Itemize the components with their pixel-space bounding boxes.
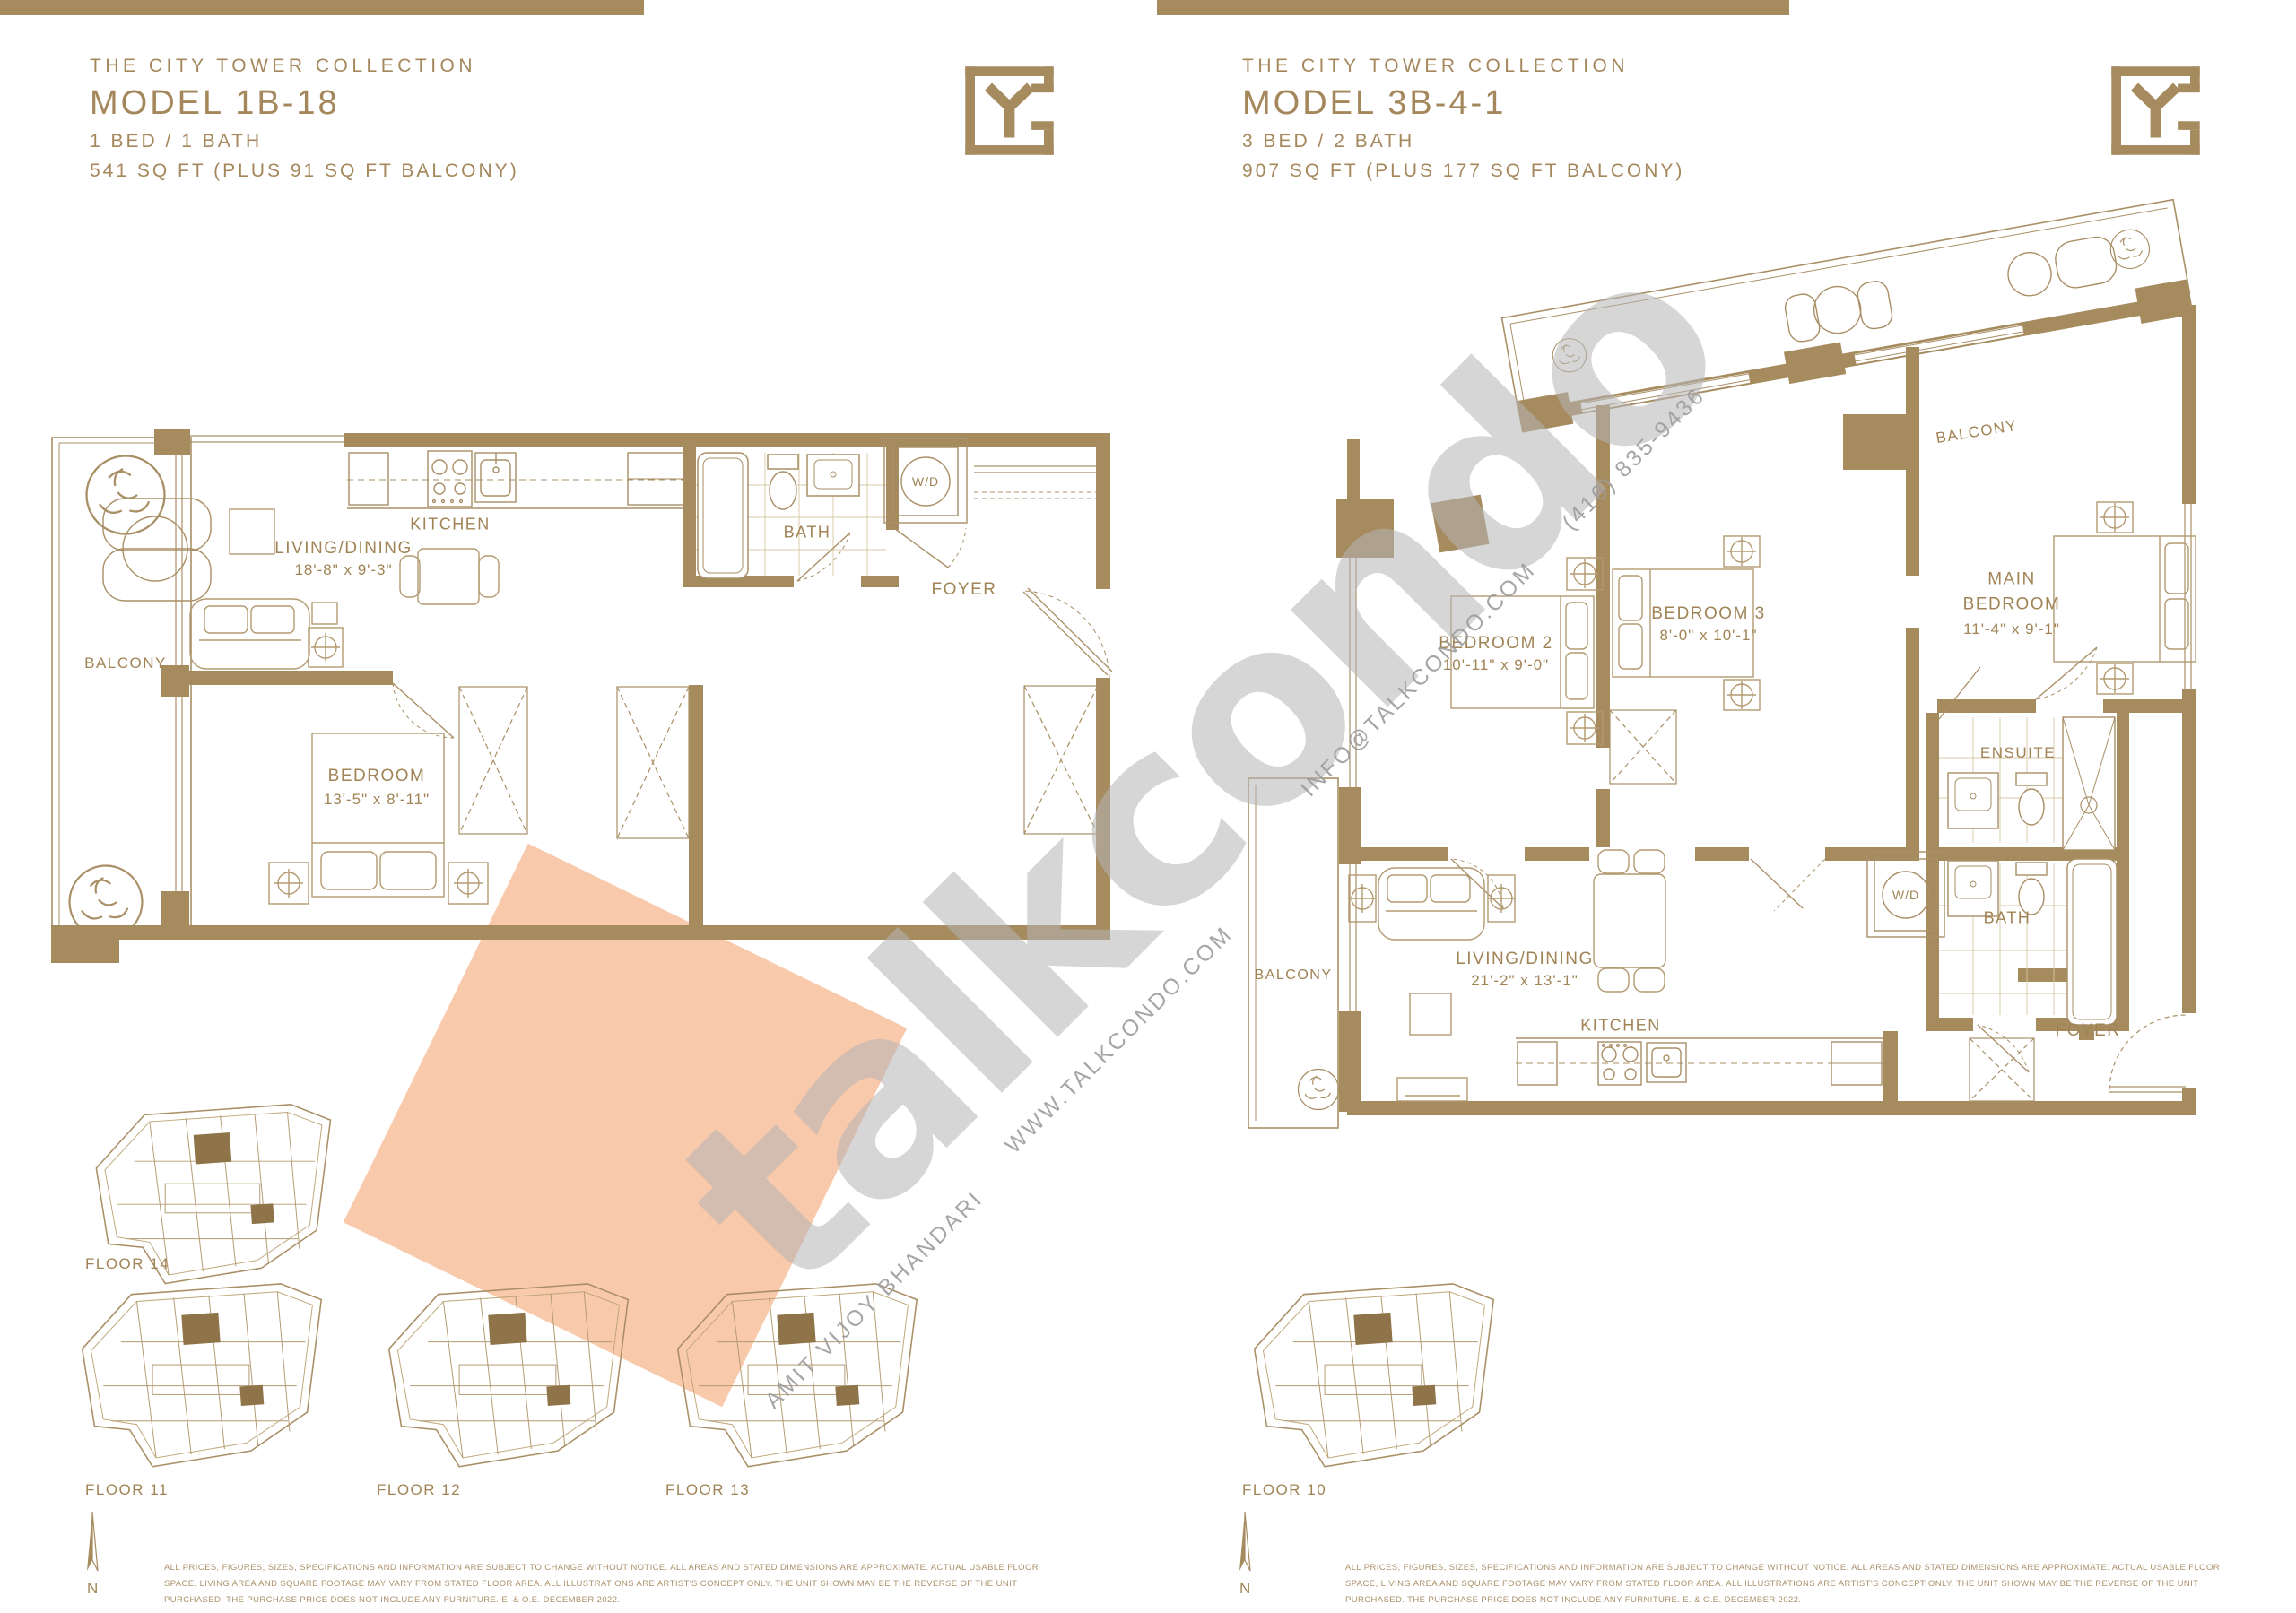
tilted-balcony	[1502, 200, 2194, 433]
key-plan-floor-10	[1255, 1284, 1494, 1467]
toilet-tank	[2016, 863, 2047, 875]
tv-console	[1397, 1078, 1467, 1101]
label-ensuite: ENSUITE	[1980, 744, 2056, 762]
balcony-lounge-chairs	[103, 499, 211, 601]
table-lamp-icon	[1487, 884, 1516, 913]
table-lamp-icon	[1570, 714, 1599, 742]
entry-door	[2109, 1087, 2186, 1092]
bed-bath-line: 1 BED / 1 BATH	[90, 131, 519, 152]
dining-set-1b18	[400, 549, 499, 604]
disclaimer-left: ALL PRICES, FIGURES, SIZES, SPECIFICATIO…	[164, 1560, 1065, 1609]
label-living-dims: 21'-2" x 13'-1"	[1471, 972, 1578, 990]
tv-console	[312, 603, 337, 624]
model-title: MODEL 1B-18	[90, 84, 519, 123]
label-foyer: FOYER	[2056, 1021, 2121, 1041]
dining-set-icon	[1594, 850, 1665, 992]
label-bedroom3: BEDROOM 3	[1651, 604, 1766, 624]
bed-bath-line: 3 BED / 2 BATH	[1242, 131, 1684, 152]
tree-icon	[87, 456, 165, 534]
bath-1b18	[696, 453, 886, 581]
kitchen-sink-icon	[475, 453, 516, 502]
label-bedroom: BEDROOM	[328, 767, 426, 786]
key-plan-floor-12	[389, 1284, 629, 1467]
table-lamp-icon	[2100, 503, 2129, 532]
label-kitchen: KITCHEN	[410, 516, 491, 534]
table-lamp-icon	[2100, 664, 2129, 693]
toilet-icon	[770, 472, 796, 509]
label-main-bedroom-dims: 11'-4" x 9'-1"	[1963, 620, 2060, 638]
area-line: 541 SQ FT (PLUS 91 SQ FT BALCONY)	[90, 160, 519, 182]
windows-1b18	[176, 436, 344, 891]
area-line: 907 SQ FT (PLUS 177 SQ FT BALCONY)	[1242, 160, 1684, 182]
label-bath: BATH	[1984, 909, 2031, 928]
label-living: LIVING/DINING	[274, 539, 413, 559]
header-right: THE CITY TOWER COLLECTION MODEL 3B-4-1 3…	[1242, 56, 1684, 182]
label-balcony-left: BALCONY	[1255, 967, 1333, 984]
table-lamp-icon	[1727, 537, 1756, 566]
foyer-1b18	[974, 466, 1112, 679]
kitchen-3b41	[1516, 1038, 1883, 1085]
label-kitchen: KITCHEN	[1580, 1017, 1661, 1036]
stove-icon	[428, 451, 472, 507]
table-lamp-icon	[311, 633, 340, 662]
collection-title: THE CITY TOWER COLLECTION	[90, 56, 519, 77]
floor-plan-3b41	[1248, 200, 2196, 1128]
balcony-left-3b41	[1248, 778, 1338, 1128]
label-wd: W/D	[912, 474, 939, 489]
label-bedroom3-dims: 8'-0" x 10'-1"	[1659, 627, 1757, 645]
key-plan-floor-11	[83, 1284, 322, 1467]
tree-icon	[2108, 227, 2152, 272]
living-furniture-1b18	[190, 509, 343, 669]
sofa-icon	[1378, 868, 1484, 940]
sofa-icon	[190, 599, 309, 669]
toilet-tank	[2016, 773, 2047, 785]
label-wd: W/D	[1892, 888, 1919, 902]
header-left: THE CITY TOWER COLLECTION MODEL 1B-18 1 …	[90, 56, 519, 182]
key-plan-floor-13	[678, 1284, 918, 1467]
label-bedroom-dims: 13'-5" x 8'-11"	[324, 791, 430, 809]
bed-1b18	[269, 733, 488, 904]
model-title: MODEL 3B-4-1	[1242, 84, 1684, 123]
rug	[1410, 993, 1451, 1035]
disclaimer-right: ALL PRICES, FIGURES, SIZES, SPECIFICATIO…	[1345, 1560, 2247, 1609]
main-bedroom-door	[2036, 647, 2097, 699]
toilet-icon	[2019, 789, 2044, 825]
label-balcony: BALCONY	[84, 655, 167, 672]
label-living-dims: 18'-8" x 9'-3"	[294, 561, 392, 579]
floor-label-11: FLOOR 11	[85, 1481, 169, 1499]
table-lamp-icon	[454, 869, 483, 898]
label-main-bedroom: MAIN BEDROOM	[1944, 567, 2079, 616]
bedroom-door-1b18	[393, 683, 454, 738]
tree-icon	[1550, 336, 1588, 375]
label-bedroom2-dims: 10'-11" x 9'-0"	[1443, 656, 1549, 674]
north-label: N	[87, 1580, 99, 1598]
floor-label-13: FLOOR 13	[665, 1481, 750, 1499]
entry-door	[1023, 588, 1112, 675]
toilet-tank	[768, 455, 798, 469]
tree-icon	[1299, 1070, 1339, 1110]
collection-title: THE CITY TOWER COLLECTION	[1242, 56, 1684, 77]
table-lamp-icon	[1570, 559, 1599, 588]
kitchen-1b18	[347, 451, 689, 508]
y-logo-icon	[961, 63, 1057, 159]
north-label: N	[1239, 1580, 1251, 1598]
hall-doors	[1451, 859, 1825, 911]
closet-bed3	[1610, 710, 1676, 784]
north-arrow-icon	[1239, 1512, 1250, 1571]
table-lamp-icon	[1348, 884, 1377, 913]
label-bedroom2: BEDROOM 2	[1439, 634, 1553, 654]
floorplan-sheet: { "left_page": { "collection": "THE CITY…	[0, 0, 2296, 1613]
table-lamp-icon	[274, 869, 303, 898]
label-bath: BATH	[784, 524, 831, 542]
north-arrow-icon	[87, 1512, 98, 1571]
rug	[230, 509, 274, 554]
closets-1b18	[459, 686, 1098, 838]
y-logo-icon	[2108, 63, 2204, 159]
shower-icon	[2063, 717, 2115, 850]
table-lamp-icon	[1727, 681, 1756, 709]
label-foyer: FOYER	[932, 580, 997, 600]
floor-plan-1b18	[51, 429, 1112, 963]
floor-label-14: FLOOR 14	[85, 1255, 170, 1273]
floor-label-10: FLOOR 10	[1242, 1481, 1326, 1499]
bath-door	[1978, 1025, 2029, 1072]
floor-label-12: FLOOR 12	[377, 1481, 461, 1499]
kitchen-sink-icon	[1647, 1043, 1686, 1082]
label-living: LIVING/DINING	[1456, 950, 1594, 969]
